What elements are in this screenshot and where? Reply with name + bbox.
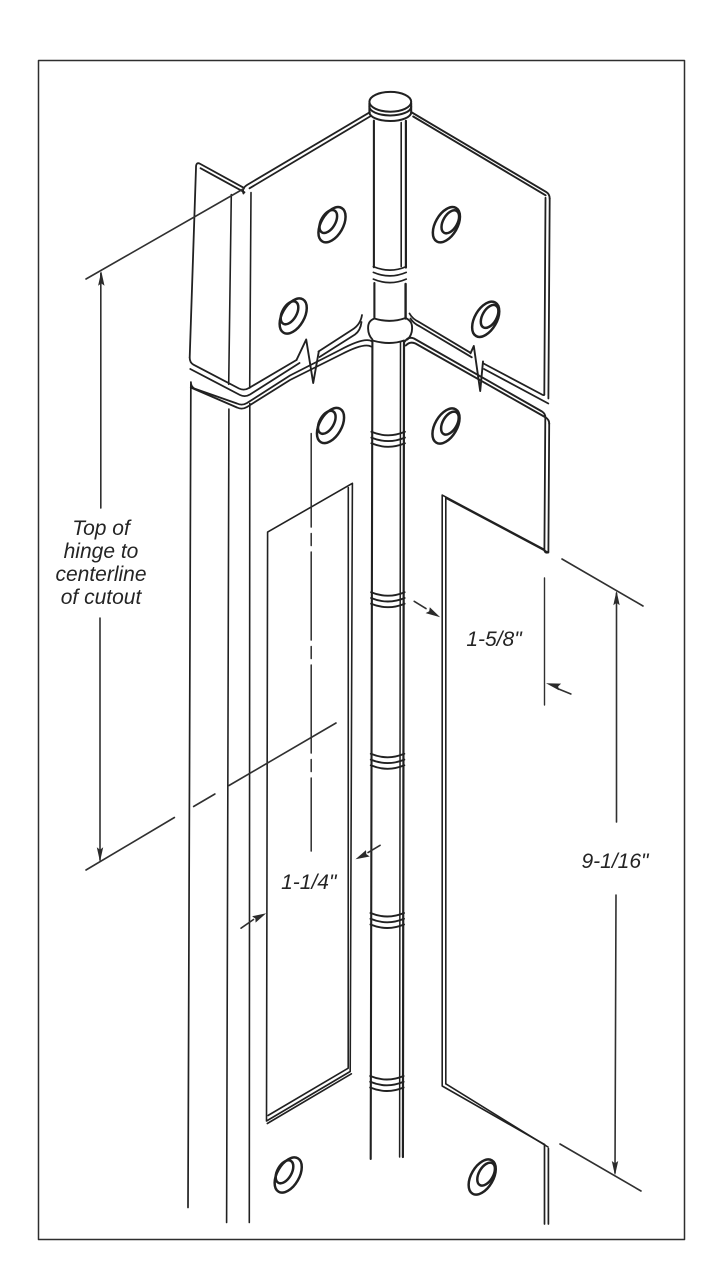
svg-text:9-1/16": 9-1/16" (582, 850, 651, 873)
svg-text:1-1/4": 1-1/4" (281, 871, 338, 894)
svg-text:1-5/8": 1-5/8" (466, 628, 523, 651)
svg-text:of cutout: of cutout (61, 586, 143, 609)
svg-text:Top of: Top of (72, 517, 132, 540)
svg-text:hinge to: hinge to (64, 540, 139, 563)
svg-text:centerline: centerline (55, 563, 146, 586)
